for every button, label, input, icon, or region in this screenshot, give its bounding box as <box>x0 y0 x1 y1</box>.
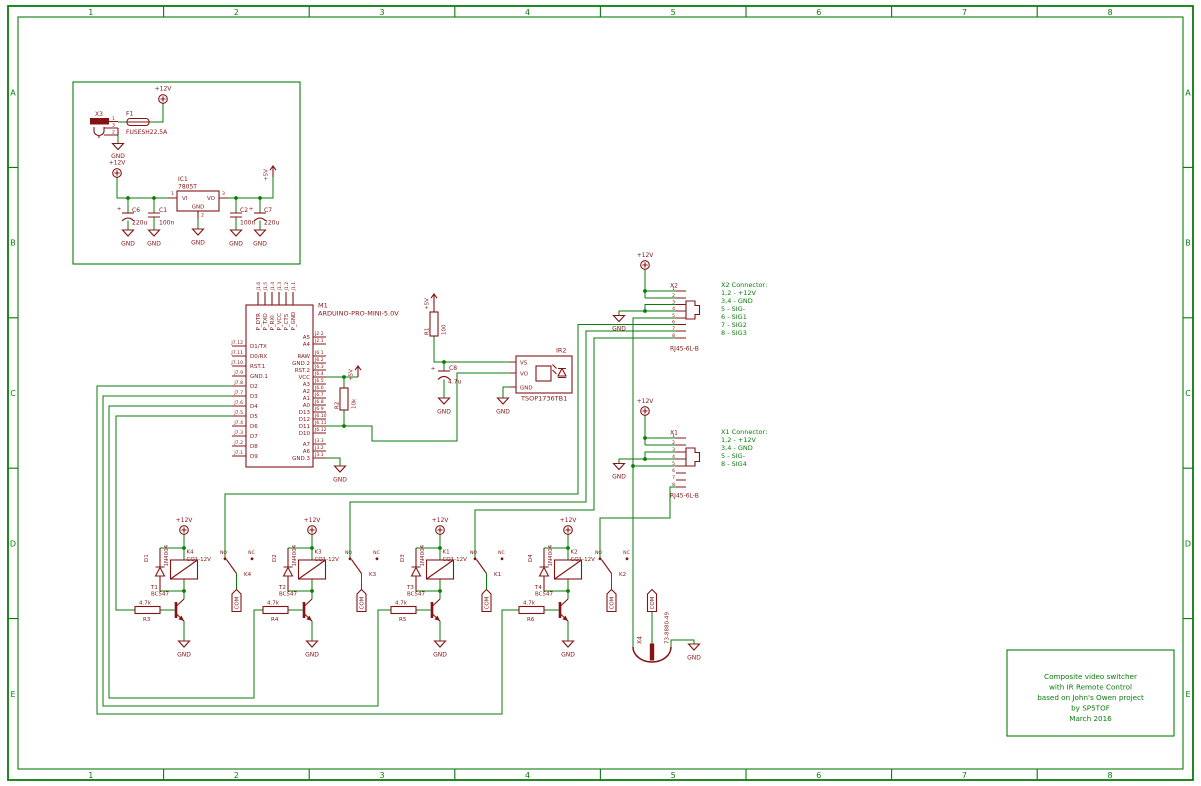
net-label: +12V <box>155 86 173 93</box>
pin-name: D6 <box>250 424 258 430</box>
frame-label: 1 <box>88 771 93 780</box>
ref-label: K2 <box>619 572 626 578</box>
ref-label: T3 <box>406 585 414 591</box>
pin-name: A4 <box>303 342 311 348</box>
net-label: +12V <box>637 252 655 259</box>
note-line: 1,2 - +12V <box>721 436 757 444</box>
ref-label: C7 <box>264 207 272 214</box>
value-label: 220u <box>264 220 279 227</box>
x1-connector-section: +12V GND X1 RJ45-6L-B 1 2 3 4 5 6 7 8 X1… <box>600 398 767 558</box>
ref-label: R5 <box>399 617 407 623</box>
note-line: 8 - SIG3 <box>721 329 747 337</box>
ref-label: D1 <box>144 554 150 562</box>
gnd-symbol <box>113 144 124 150</box>
ref-label: D3 <box>400 554 406 562</box>
note-line: 1,2 - +12V <box>721 289 757 297</box>
value-label: 1N4004 <box>292 544 298 566</box>
pin-label: 6 <box>672 468 675 474</box>
value-label: 4.7u <box>448 379 462 386</box>
net-label: GND <box>612 474 626 481</box>
p12-symbol <box>159 95 168 104</box>
pin-name: A3 <box>303 382 311 388</box>
frame-label: 6 <box>816 8 821 17</box>
ref-label: F1 <box>126 111 133 118</box>
power-supply-section: X3 1 3 2 F1 FUSESH22,5A +12V +12V +5V IC… <box>73 82 300 264</box>
pin-name: P_RXI <box>270 315 276 331</box>
pin-label: 2 <box>672 440 675 446</box>
frame-label: 8 <box>1107 8 1112 17</box>
gnd-symbol <box>335 466 346 472</box>
resistor-body <box>391 607 416 614</box>
note-line: 5 - SIG- <box>721 305 746 313</box>
pin-label: VO <box>207 196 216 202</box>
pin-name: D8 <box>250 444 258 450</box>
pin-label: VI <box>182 196 188 202</box>
ref-label: K3 <box>369 572 377 578</box>
ref-label: R3 <box>143 617 151 623</box>
frame-label: 7 <box>962 8 967 17</box>
frame-label: 4 <box>525 771 530 780</box>
pin-label: J7.4 <box>233 420 243 426</box>
title-line: based on John's Owen project <box>1037 693 1144 702</box>
frame-label: 6 <box>816 771 821 780</box>
net-label: GND <box>612 326 626 333</box>
net-label: GND <box>111 153 125 160</box>
title-block: Composite video switcher with IR Remote … <box>1007 650 1174 736</box>
ref-label: X4 <box>637 636 644 644</box>
note-line: 8 - SIG4 <box>721 460 747 468</box>
pin-label: J6.8 <box>314 399 324 405</box>
pin-label: 7 <box>672 326 675 332</box>
value-label: RJ45-6L-B <box>670 346 699 353</box>
net-label: COM <box>610 596 616 609</box>
pin-name: GND.3 <box>292 456 310 462</box>
ref-label: K1 <box>443 550 450 556</box>
pin-label: J7.11 <box>230 350 243 356</box>
frame-label: A <box>1185 88 1191 97</box>
ref-label: C1 <box>159 207 167 214</box>
contact-label: NO <box>345 550 352 556</box>
p12-symbol <box>564 526 573 535</box>
net-label: COM <box>650 596 656 609</box>
title-line: by SP5TOF <box>1071 704 1110 713</box>
pin-name: A2 <box>303 389 310 395</box>
rca-pin-icon <box>650 644 654 661</box>
pin-label: J1.3 <box>277 282 283 292</box>
pin-label: J6.3 <box>314 364 324 370</box>
value-label: FUSESH22,5A <box>126 129 168 136</box>
pin-label: 5 <box>672 313 675 319</box>
frame-label: A <box>10 88 16 97</box>
pin-label: J1.5 <box>263 282 269 292</box>
ref-label: K3 <box>315 550 323 556</box>
value-label: BC547 <box>407 592 426 598</box>
net-label: +5V <box>425 298 431 310</box>
pin-label: J7.9 <box>233 370 243 376</box>
ref-label: D4 <box>528 554 534 562</box>
ref-label: K1 <box>494 572 501 578</box>
resistor-body <box>340 388 348 410</box>
pin-label: 3 <box>672 299 675 305</box>
pin-name: D2 <box>250 384 258 390</box>
ref-label: K4 <box>244 572 252 578</box>
rj45-icon <box>686 301 700 319</box>
p5-symbol <box>355 366 361 377</box>
pin-label: J3.2 <box>314 445 324 451</box>
pin-label: J1.2 <box>284 282 290 292</box>
polarity-label: + <box>431 366 436 372</box>
pin-name: D12 <box>299 417 310 423</box>
contact-label: NO <box>470 550 477 556</box>
dc-jack-icon <box>90 118 109 125</box>
pin-label: J6.2 <box>314 357 324 363</box>
value-label: CQ1-12V <box>571 557 596 563</box>
pin-label: 2 <box>672 293 675 299</box>
net-label: GND <box>496 409 510 416</box>
frame-label: 3 <box>379 771 384 780</box>
pin-label: J6.10 <box>314 413 327 419</box>
gnd-symbol <box>255 230 266 236</box>
relay-driver-1: +12V D1 1N4004 K4 CQ1-12V T1 BC547 4.7k … <box>135 517 255 659</box>
pin-label: J3.1 <box>314 452 324 458</box>
resistor-body <box>135 607 160 614</box>
pin-label: J2.2 <box>314 331 324 337</box>
pin-label: 2 <box>201 213 204 219</box>
value-label: CQ1-12V <box>187 557 212 563</box>
value-label: TSOP1736TB1 <box>520 395 567 403</box>
net-label: GND <box>333 477 347 484</box>
pin-name: A1 <box>303 396 310 402</box>
pin-name: D11 <box>299 424 310 430</box>
pin-label: 5 <box>672 461 675 467</box>
pin-label: J7.2 <box>233 440 243 446</box>
note-line: 3,4 - GND <box>721 444 753 452</box>
net-label: +12V <box>560 517 578 524</box>
net-label: +5V <box>349 369 355 381</box>
net-label: GND <box>229 241 243 248</box>
p12-symbol <box>436 526 445 535</box>
pin-name: D7 <box>250 434 258 440</box>
pin-label: 8 <box>672 333 675 339</box>
pin-label: J7.7 <box>233 390 243 396</box>
schematic-canvas: 1 2 3 4 5 6 7 8 1 2 3 4 5 6 7 8 A B C D … <box>0 0 1201 786</box>
pin-name: D10 <box>299 431 311 437</box>
frame-label: 1 <box>88 8 93 17</box>
value-label: 220u <box>132 220 147 227</box>
pin-label: J7.12 <box>230 340 243 346</box>
value-label: 73-8880-49 <box>665 612 671 644</box>
net-label: GND <box>561 652 575 659</box>
p5-symbol <box>431 294 437 305</box>
p5-symbol <box>270 166 276 177</box>
schematic-sheet: 1 2 3 4 5 6 7 8 1 2 3 4 5 6 7 8 A B C D … <box>0 0 1201 786</box>
pin-label: J7.3 <box>233 430 243 436</box>
net-label: GND <box>191 240 205 247</box>
ref-label: R4 <box>271 617 279 623</box>
ref-label: C2 <box>240 207 248 214</box>
value-label: CQ1-12V <box>315 557 340 563</box>
gnd-symbol <box>193 229 204 235</box>
ref-label: M1 <box>318 302 328 310</box>
transistor-icon <box>304 599 312 621</box>
net-label: GND <box>147 241 161 248</box>
pin-label: J1.4 <box>270 282 276 292</box>
ref-label: T4 <box>534 585 542 591</box>
title-line: March 2016 <box>1069 714 1112 723</box>
note-line: 7 - SIG2 <box>721 321 747 329</box>
pin-label: J6.5 <box>314 378 324 384</box>
pin-name: A5 <box>303 335 311 341</box>
p12-symbol <box>641 261 650 270</box>
pin-name: D0/RX <box>250 354 267 360</box>
frame-label: 2 <box>234 771 239 780</box>
sheet-frame: 1 2 3 4 5 6 7 8 1 2 3 4 5 6 7 8 A B C D … <box>8 6 1193 780</box>
contact-label: NO <box>220 550 227 556</box>
value-label: 4.7k <box>139 601 152 607</box>
value-label: ARDUINO-PRO-MINI-5.0V <box>318 310 399 318</box>
ref-label: IR2 <box>556 347 567 355</box>
net-label: +12V <box>637 398 655 405</box>
value-label: 100n <box>159 220 174 227</box>
polarity-label: + <box>249 207 254 213</box>
arduino-module: M1 ARDUINO-PRO-MINI-5.0V J7.12 J7.11 J7.… <box>97 282 519 714</box>
pin-name: P_VCC <box>277 313 283 331</box>
ir-receiver-section: +5V R1 100 + C8 4.7u GND GND IR2 TSOP173… <box>425 294 573 416</box>
gnd-symbol <box>614 316 625 322</box>
net-label: +12V <box>304 517 322 524</box>
pin-name: GND.2 <box>292 361 310 367</box>
x4-output-section: COM X4 73-8880-49 GND <box>633 590 701 663</box>
pin-name: D13 <box>299 410 311 416</box>
pin-name: D5 <box>250 414 258 420</box>
relay-driver-4: +12V D4 1N4004 K2 CQ1-12V T4 BC547 4.7k … <box>519 517 630 659</box>
net-label: COM <box>235 596 241 609</box>
resistor-body <box>430 312 438 336</box>
resistor-body <box>263 607 288 614</box>
relay-driver-3: +12V D3 1N4004 K1 CQ1-12V T3 BC547 4.7k … <box>391 517 505 659</box>
net-label: +12V <box>432 517 450 524</box>
p12-symbol <box>308 526 317 535</box>
frame-label: 3 <box>379 8 384 17</box>
gnd-symbol <box>123 230 134 236</box>
pin-name: D3 <box>250 394 258 400</box>
net-label: COM <box>485 596 491 609</box>
pin-label: GND <box>192 205 205 211</box>
value-label: BC547 <box>279 592 298 598</box>
pin-name: VO <box>520 372 529 378</box>
pin-label: J2.1 <box>314 338 324 344</box>
gnd-symbol <box>563 641 574 647</box>
pin-label: J7.1 <box>233 450 243 456</box>
pin-label: J6.7 <box>314 392 324 398</box>
ref-label: X3 <box>95 111 103 118</box>
note-line: 5 - SIG- <box>721 452 746 460</box>
ref-label: T2 <box>278 585 286 591</box>
ref-label: C6 <box>132 207 140 214</box>
pin-name: D1/TX <box>250 344 267 350</box>
pin-name: P_GND <box>291 312 297 331</box>
net-label: +5V <box>264 169 270 181</box>
frame-label: C <box>1185 389 1191 398</box>
note-line: X1 Connector: <box>721 428 767 436</box>
pin-label: J7.10 <box>230 360 243 366</box>
value-label: BC547 <box>151 592 170 598</box>
pin-name: A7 <box>303 442 311 448</box>
gnd-symbol <box>498 398 509 404</box>
value-label: BC547 <box>535 592 554 598</box>
pin-label: J6.4 <box>314 371 324 377</box>
ref-label: C8 <box>449 365 457 372</box>
net-label: +12V <box>109 160 127 167</box>
p12-symbol <box>180 526 189 535</box>
net-label: GND <box>433 652 447 659</box>
title-line: Composite video switcher <box>1044 672 1137 681</box>
relay-driver-2: +12V D2 1N4004 K3 CQ1-12V T2 BC547 4.7k … <box>263 517 380 659</box>
pin-label: J7.6 <box>233 400 243 406</box>
value-label: 100 <box>442 324 448 335</box>
pin-label: 3 <box>112 123 115 129</box>
p12-symbol <box>113 169 122 178</box>
pin-name: GND.1 <box>250 374 268 380</box>
net-label: GND <box>305 652 319 659</box>
pin-label: 4 <box>672 454 675 460</box>
pin-label: J6.11 <box>314 420 327 426</box>
gnd-symbol <box>614 464 625 470</box>
pin-name: D4 <box>250 404 258 410</box>
frame-label: E <box>1185 690 1190 699</box>
pin-label: J6.6 <box>314 385 324 391</box>
frame-label: 5 <box>671 8 676 17</box>
gnd-symbol <box>689 644 700 650</box>
pin-name: RST.1 <box>250 364 265 370</box>
frame-label: 2 <box>234 8 239 17</box>
pin-name: VS <box>520 361 528 367</box>
pin-name: P_CTS <box>284 313 290 330</box>
contact-label: NC <box>373 550 380 556</box>
value-label: 1N4004 <box>548 544 554 566</box>
pin-label: 4 <box>672 306 675 312</box>
contact-label: NO <box>595 550 602 556</box>
pin-label: J3.3 <box>314 438 324 444</box>
value-label: 10k <box>352 398 358 409</box>
pin-name: VCC <box>299 375 311 381</box>
gnd-symbol <box>179 641 190 647</box>
net-label: GND <box>121 241 135 248</box>
net-label: GND <box>437 409 451 416</box>
pin-label: 1 <box>171 191 174 197</box>
contact-label: NC <box>248 550 255 556</box>
net-label: GND <box>253 241 267 248</box>
note-line: X2 Connector: <box>721 281 767 289</box>
pin-name: RAW <box>298 354 311 360</box>
ref-label: T1 <box>150 585 158 591</box>
frame-label: E <box>10 690 15 699</box>
pin-label: J1.6 <box>256 282 262 292</box>
transistor-icon <box>176 599 184 621</box>
rj45-icon <box>686 448 700 466</box>
net-label: GND <box>687 655 701 662</box>
value-label: 100n <box>240 220 255 227</box>
value-label: RJ45-6L-B <box>670 493 699 500</box>
transistor-icon <box>560 599 568 621</box>
transistor-icon <box>432 599 440 621</box>
pin-name: RST.2 <box>295 368 310 374</box>
gnd-symbol <box>231 230 242 236</box>
ref-label: K2 <box>571 550 578 556</box>
frame-label: 5 <box>671 771 676 780</box>
ref-label: R6 <box>527 617 535 623</box>
frame-label: 7 <box>962 771 967 780</box>
value-label: 4.7k <box>523 601 536 607</box>
frame-label: 4 <box>525 8 530 17</box>
pin-label: 7 <box>672 475 675 481</box>
pin-name: P_TXO <box>263 313 269 331</box>
value-label: 1N4004 <box>164 544 170 566</box>
resistor-body <box>519 607 544 614</box>
gnd-symbol <box>439 398 450 404</box>
value-label: 4.7k <box>267 601 280 607</box>
pin-label: 8 <box>672 482 675 488</box>
pin-label: J7.8 <box>233 380 243 386</box>
pin-label: 3 <box>672 447 675 453</box>
gnd-symbol <box>307 641 318 647</box>
ref-label: R1 <box>425 328 431 335</box>
frame-label: B <box>1185 239 1191 248</box>
pin-name: P_DTR <box>256 313 262 331</box>
net-label: +12V <box>176 517 194 524</box>
note-line: 3,4 - GND <box>721 297 753 305</box>
gnd-symbol <box>149 230 160 236</box>
gnd-symbol <box>435 641 446 647</box>
pin-label: J1.1 <box>291 282 297 292</box>
p12-symbol <box>641 407 650 416</box>
ref-label: IC1 <box>178 176 188 183</box>
pin-label: 1 <box>672 433 675 439</box>
frame-label: D <box>10 540 16 549</box>
frame-label: B <box>10 239 16 248</box>
pin-label: 3 <box>222 191 225 197</box>
frame-label: C <box>10 389 16 398</box>
note-line: 6 - SIG1 <box>721 313 747 321</box>
pin-name: A0 <box>303 403 311 409</box>
pin-label: J6.9 <box>314 406 324 412</box>
polarity-label: + <box>117 207 122 213</box>
value-label: 1N4004 <box>420 544 426 566</box>
pin-label: J6.12 <box>314 427 327 433</box>
contact-label: NC <box>498 550 505 556</box>
value-label: 4.7k <box>395 601 408 607</box>
frame-label: 8 <box>1107 771 1112 780</box>
contact-label: NC <box>623 550 630 556</box>
value-label: CQ1-12V <box>443 557 468 563</box>
net-label: GND <box>177 652 191 659</box>
pin-name: D9 <box>250 454 258 460</box>
frame-label: D <box>1185 540 1191 549</box>
net-label: COM <box>360 596 366 609</box>
ref-label: D2 <box>272 554 278 562</box>
pin-name: GND <box>520 386 533 392</box>
pin-label: J6.1 <box>314 350 324 356</box>
pin-label: 1 <box>112 116 115 122</box>
ref-label: R2 <box>335 402 341 409</box>
pin-label: 1 <box>672 286 675 292</box>
pin-label: J7.5 <box>233 410 243 416</box>
pin-name: A6 <box>303 449 311 455</box>
pin-label: 2 <box>112 130 115 136</box>
title-line: with IR Remote Control <box>1049 683 1132 692</box>
value-label: 7805T <box>178 184 197 191</box>
pin-label: 6 <box>672 319 675 325</box>
